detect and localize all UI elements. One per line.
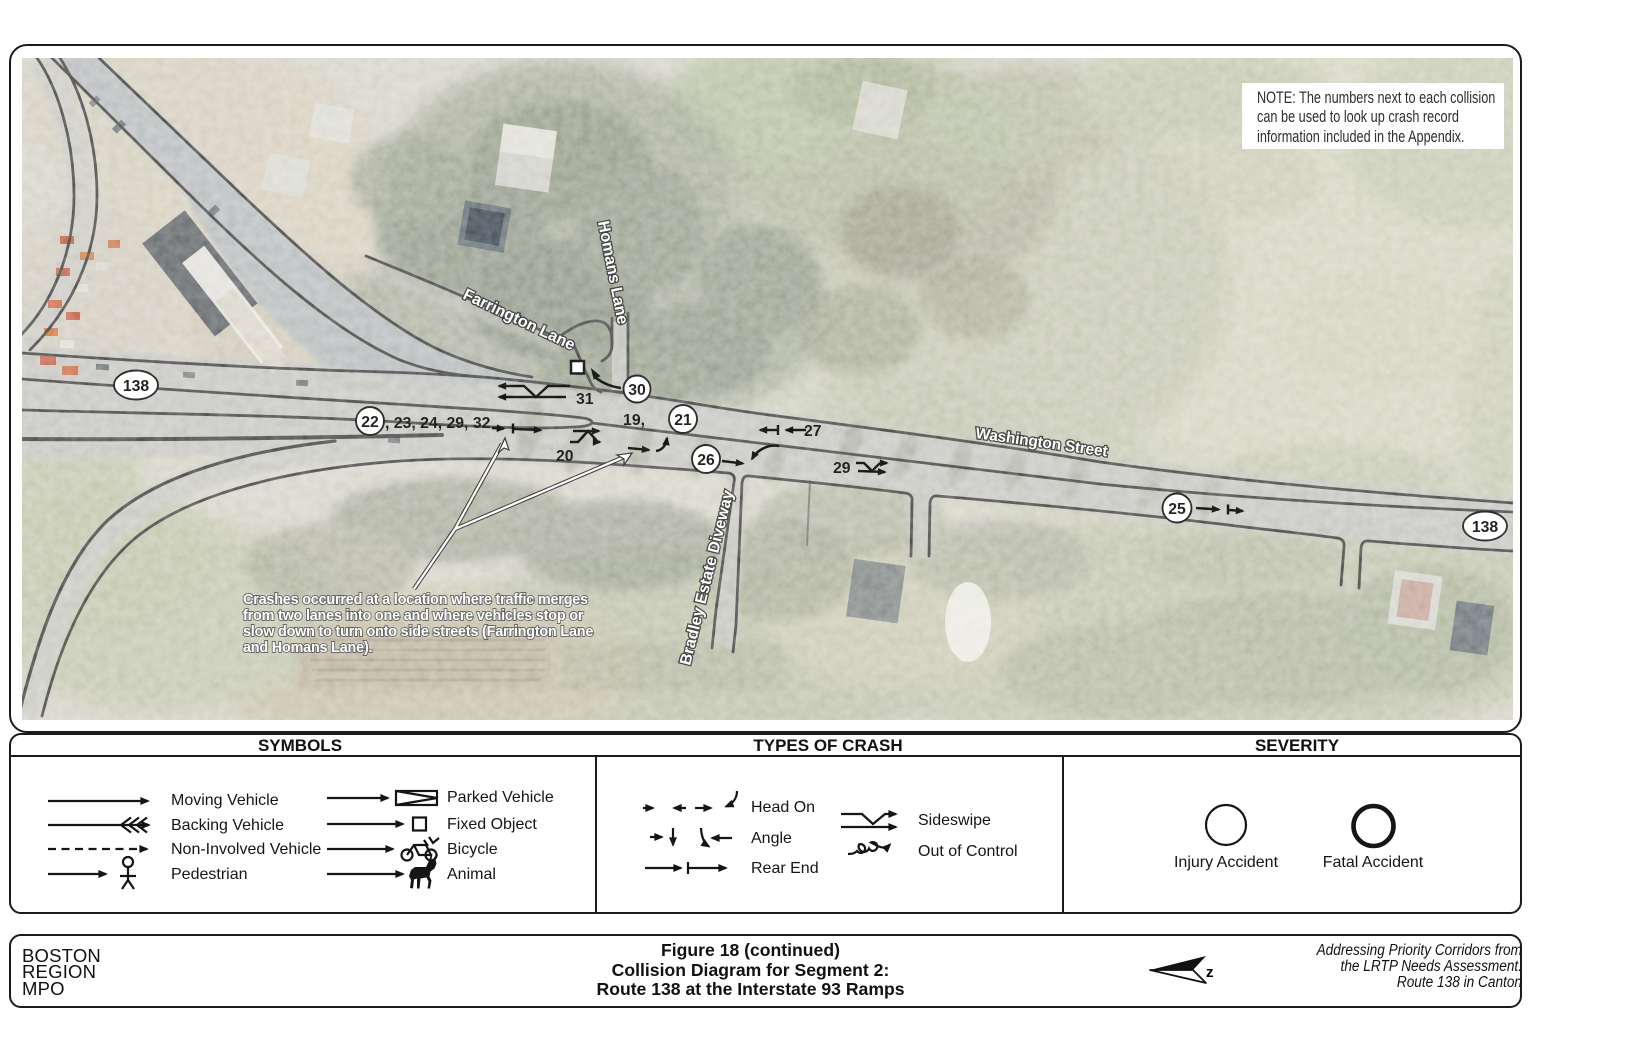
svg-text:z: z xyxy=(1206,964,1214,981)
